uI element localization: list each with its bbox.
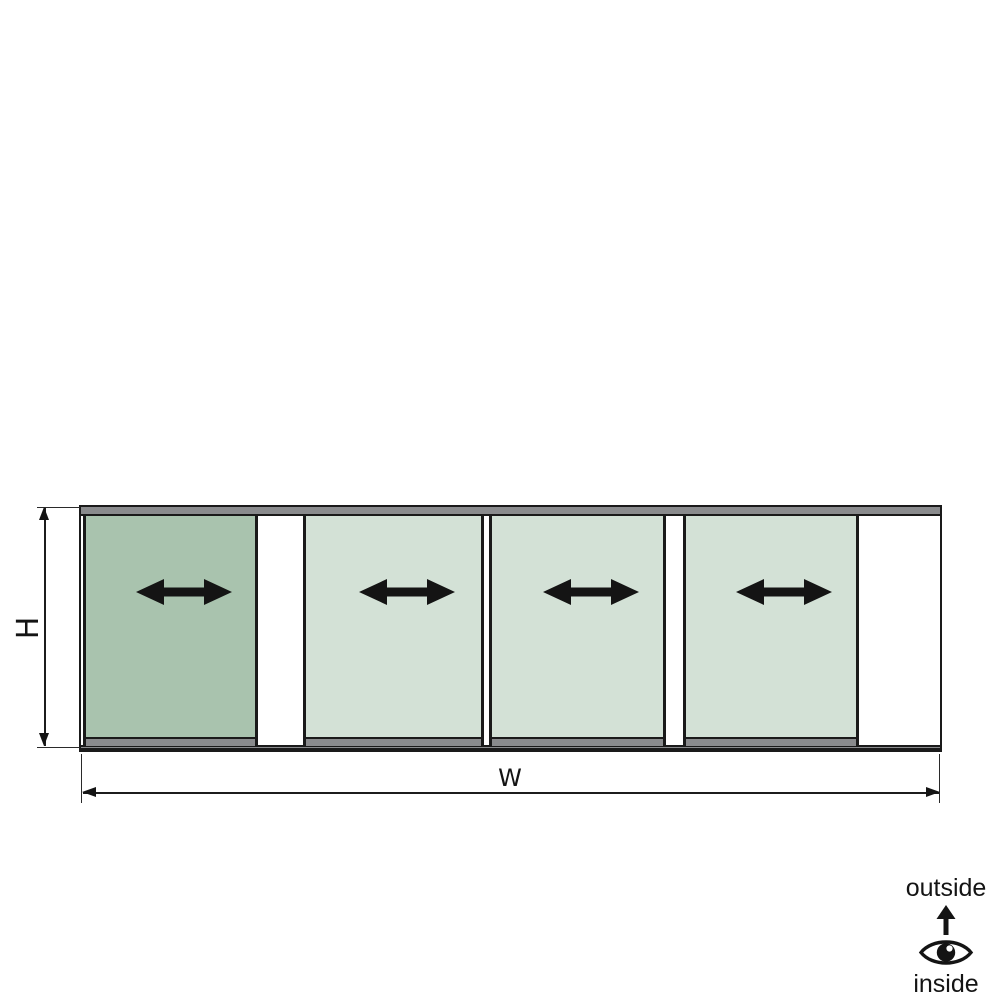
arrow-up-icon bbox=[933, 905, 959, 935]
panel-bottom-track bbox=[686, 737, 856, 746]
dimension-arrowhead-left-icon bbox=[82, 787, 96, 797]
sliding-panel-4 bbox=[683, 516, 859, 746]
width-dimension-label: W bbox=[460, 764, 560, 792]
slide-direction-arrow-icon bbox=[543, 579, 639, 605]
dimension-arrowhead-down-icon bbox=[39, 733, 49, 746]
door-frame bbox=[79, 505, 942, 752]
dimension-arrowhead-right-icon bbox=[926, 787, 940, 797]
slide-direction-arrow-icon bbox=[736, 579, 832, 605]
sliding-panel-2 bbox=[303, 516, 484, 746]
panel-bottom-track bbox=[86, 737, 255, 746]
panel-bottom-track bbox=[492, 737, 663, 746]
height-dimension-label: H bbox=[11, 611, 47, 645]
slide-direction-arrow-icon bbox=[359, 579, 455, 605]
panel-bottom-track bbox=[306, 737, 481, 746]
height-extension-line-bottom bbox=[37, 747, 80, 748]
sliding-panel-1 bbox=[83, 516, 258, 746]
top-rail bbox=[81, 507, 940, 516]
width-dimension-line bbox=[83, 792, 939, 794]
sliding-panel-3 bbox=[489, 516, 666, 746]
orientation-legend: outside inside bbox=[888, 874, 1000, 998]
outside-label: outside bbox=[888, 874, 1000, 902]
eye-icon bbox=[918, 935, 974, 970]
slide-direction-arrow-icon bbox=[136, 579, 232, 605]
inside-label: inside bbox=[888, 970, 1000, 998]
dimension-arrowhead-up-icon bbox=[39, 507, 49, 520]
